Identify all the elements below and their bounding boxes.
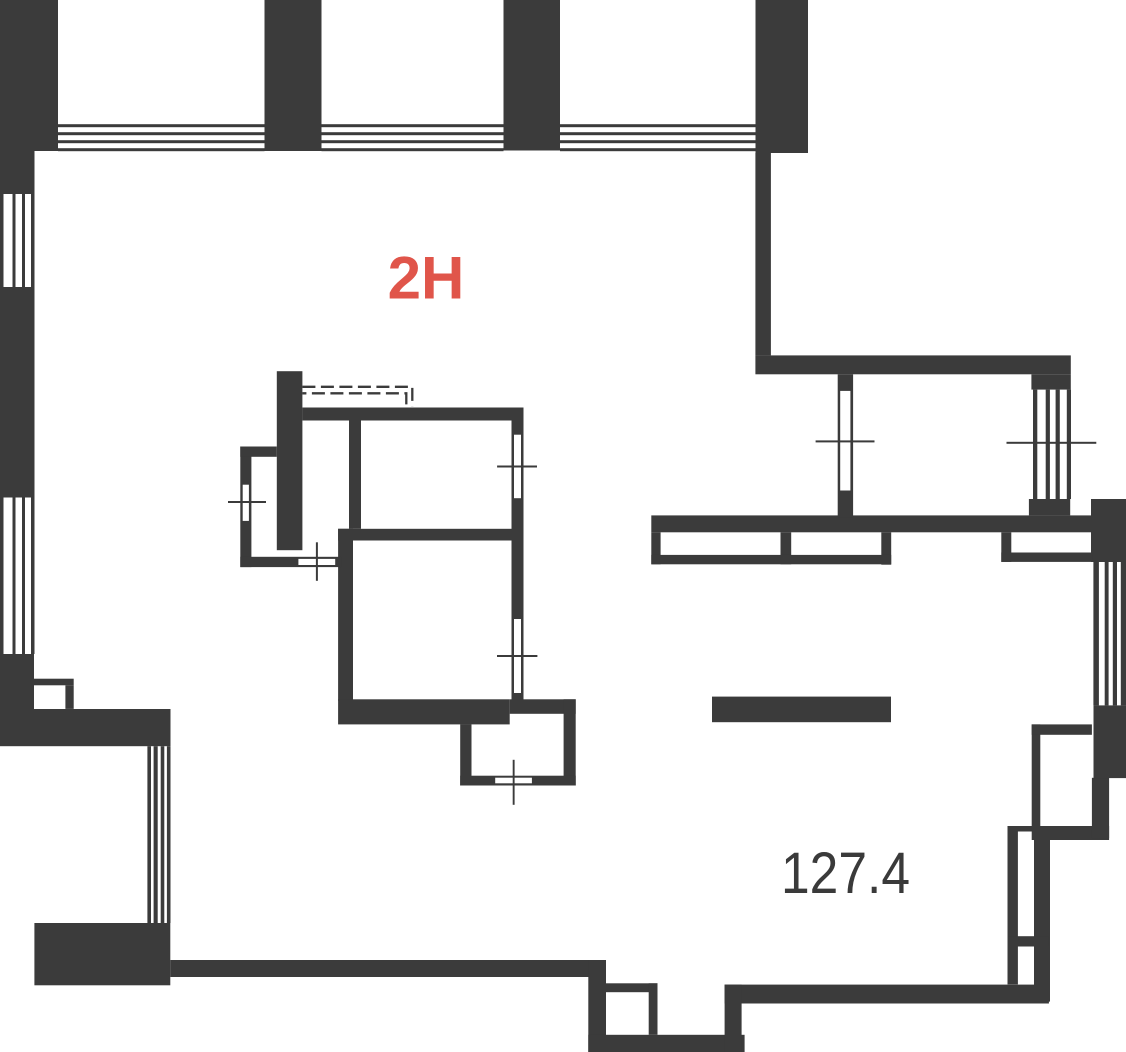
svg-text:127.4: 127.4	[781, 841, 910, 906]
svg-text:2H: 2H	[388, 245, 465, 312]
